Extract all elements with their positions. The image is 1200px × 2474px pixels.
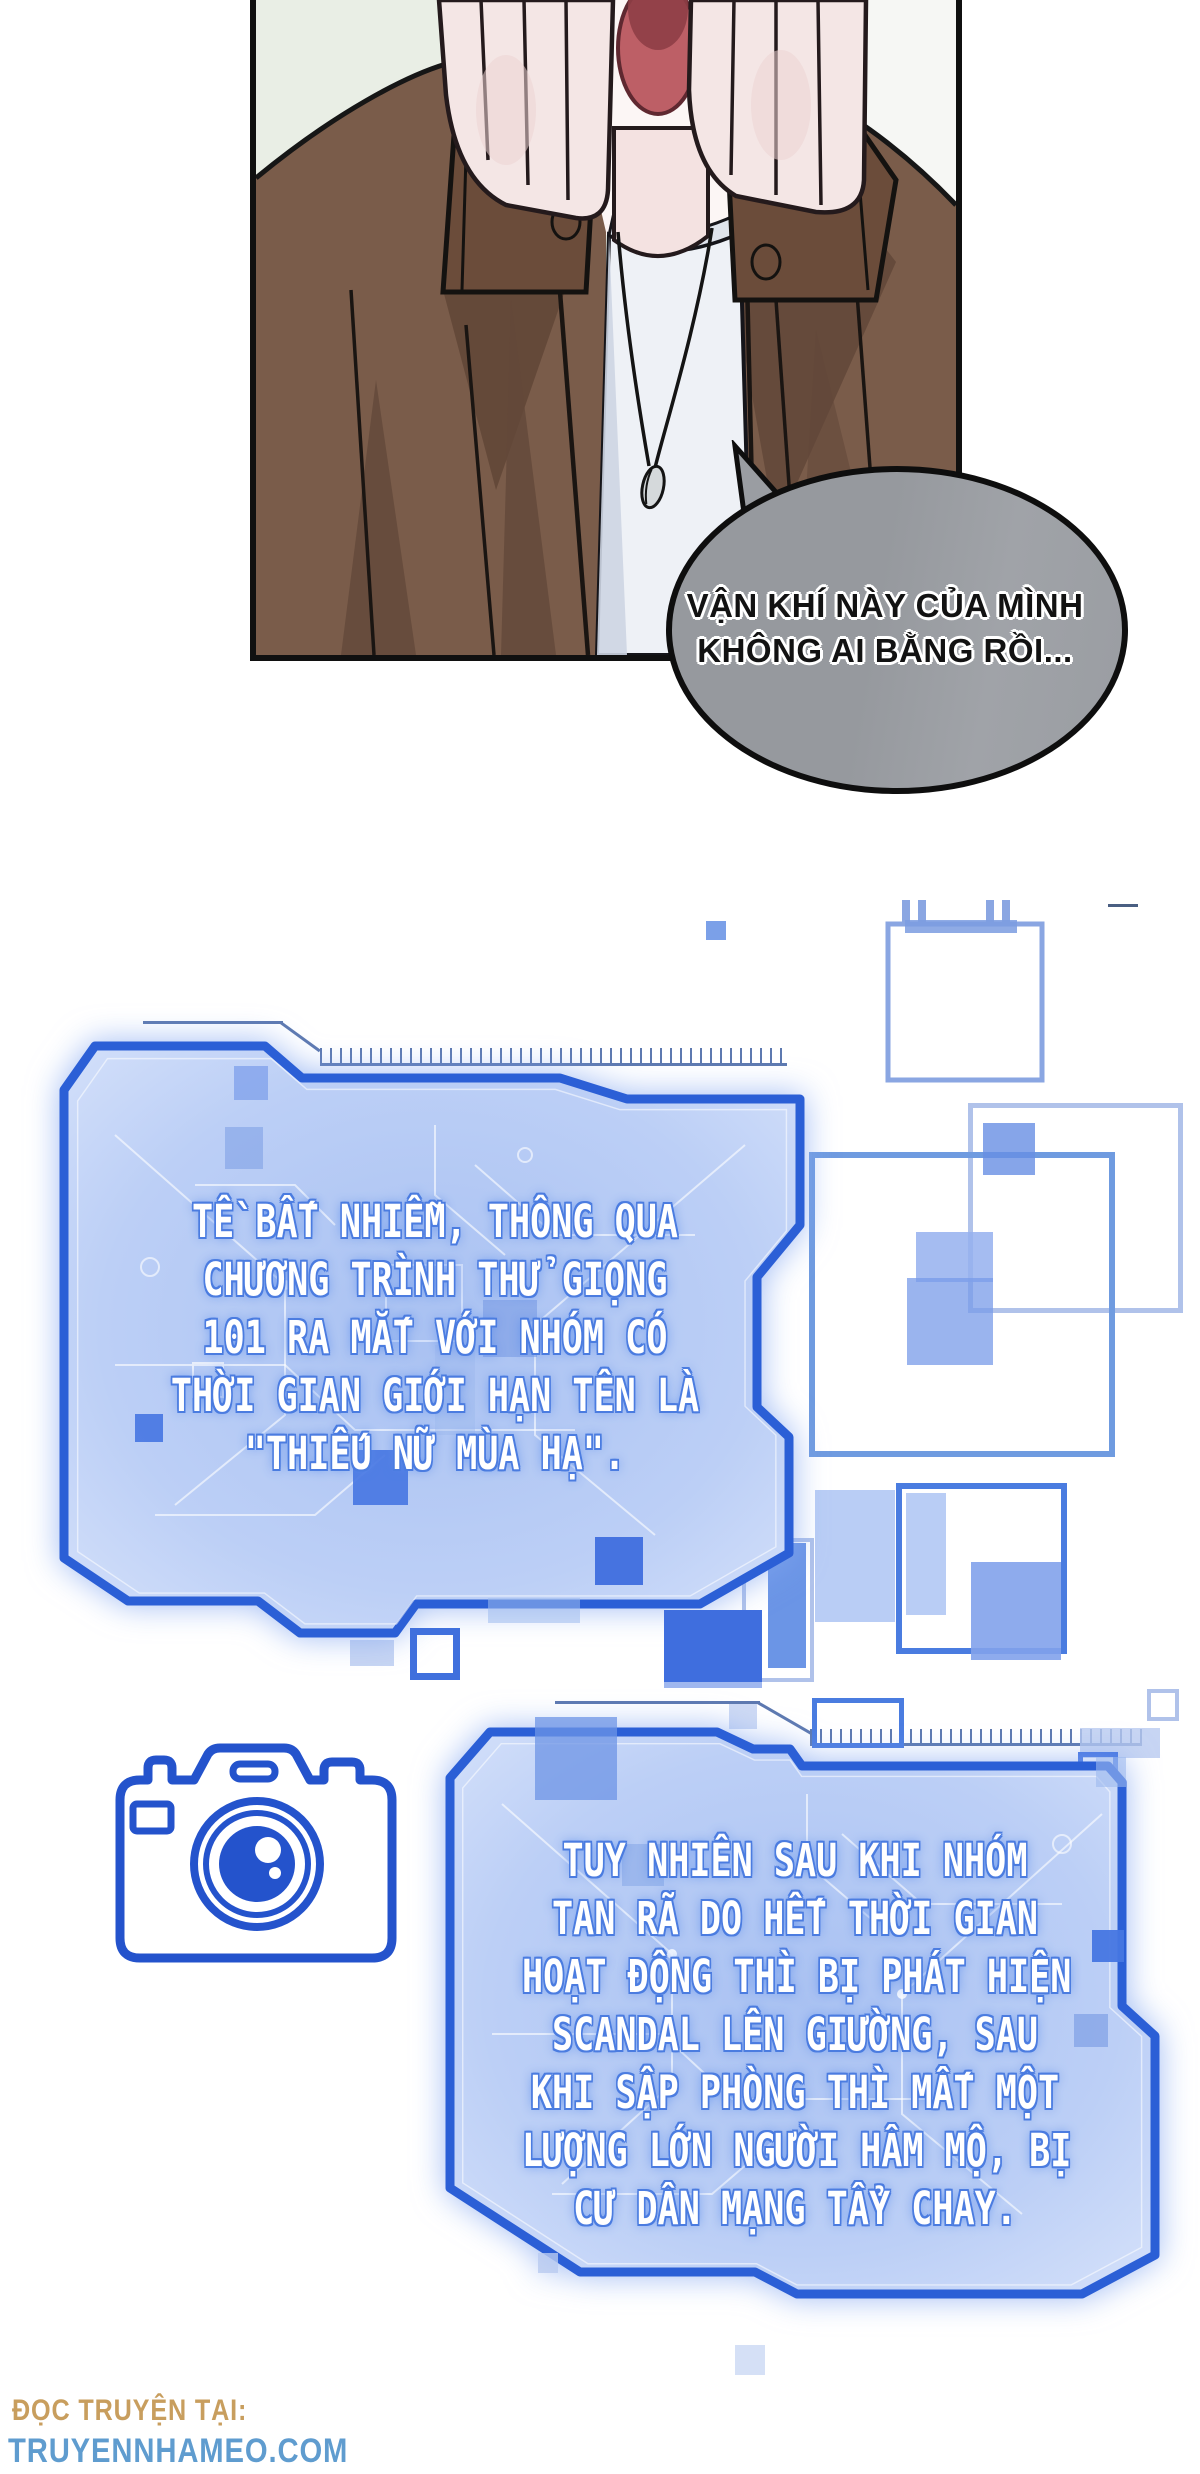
- holo2-line: SCANDAL LÊN GIƯỜNG, SAU: [522, 2006, 1068, 2064]
- holo1-line: CHƯƠNG TRÌNH THỬ GIỌNG: [166, 1251, 704, 1309]
- holo2-line: TUY NHIÊN SAU KHI NHÓM: [522, 1832, 1068, 1890]
- decor-line: [555, 1701, 760, 1704]
- holo2-line: TAN RÃ DO HẾT THỜI GIAN: [522, 1890, 1068, 1948]
- holo1-line: THỜI GIAN GIỚI HẠN TÊN LÀ: [166, 1367, 704, 1425]
- decor-square: [488, 1598, 580, 1623]
- decor-frame-battery: [885, 898, 1047, 1088]
- holo2-line: HOẠT ĐỘNG THÌ BỊ PHÁT HIỆN: [522, 1948, 1068, 2006]
- camera-icon: [112, 1738, 402, 1973]
- decor-square: [815, 1490, 895, 1622]
- decor-square: [907, 1278, 993, 1365]
- decor-square: [535, 1717, 617, 1800]
- decor-square: [664, 1610, 762, 1688]
- decor-square: [735, 2345, 765, 2375]
- speech-bubble-text: VẬN KHÍ NÀY CỦA MÌNH KHÔNG AI BẰNG RỒI..…: [685, 583, 1085, 673]
- holo2-line: CƯ DÂN MẠNG TẨY CHAY.: [522, 2180, 1068, 2238]
- decor-line: [1108, 904, 1138, 907]
- holo2-line: LƯỢNG LỚN NGƯỜI HÂM MỘ, BỊ: [522, 2122, 1068, 2180]
- decor-square: [916, 1232, 993, 1282]
- bubble-line: VẬN KHÍ NÀY CỦA MÌNH: [685, 583, 1085, 628]
- chin: [614, 128, 708, 256]
- holo1-line: 101 RA MẮT VỚI NHÓM CÓ: [166, 1309, 704, 1367]
- footer-site-url: TRUYENNHAMEO.COM: [8, 2432, 348, 2471]
- decor-square: [234, 1066, 268, 1100]
- decor-line: [143, 1021, 283, 1024]
- decor-square-outline: [1147, 1689, 1179, 1721]
- bubble-line: KHÔNG AI BẰNG RỒI...: [685, 628, 1085, 673]
- holo-box-1-text: TỀ BẤT NHIỄM, THÔNG QUA CHƯƠNG TRÌNH THỬ…: [166, 1193, 704, 1483]
- decor-square: [971, 1562, 1061, 1660]
- comic-page: VẬN KHÍ NÀY CỦA MÌNH KHÔNG AI BẰNG RỒI..…: [0, 0, 1200, 2474]
- decor-square-outline: [410, 1628, 460, 1680]
- holo2-line: KHI SẬP PHÒNG THÌ MẤT MỘT: [522, 2064, 1068, 2122]
- holo1-line: TỀ BẤT NHIỄM, THÔNG QUA: [166, 1193, 704, 1251]
- decor-square: [906, 1493, 946, 1615]
- decor-square: [983, 1123, 1035, 1175]
- decor-square: [706, 921, 726, 940]
- holo-box-2-text: TUY NHIÊN SAU KHI NHÓM TAN RÃ DO HẾT THỜ…: [522, 1832, 1068, 2238]
- footer-reading-label: ĐỌC TRUYỆN TẠI:: [12, 2394, 247, 2428]
- holo1-line: "THIẾU NỮ MÙA HẠ".: [166, 1425, 704, 1483]
